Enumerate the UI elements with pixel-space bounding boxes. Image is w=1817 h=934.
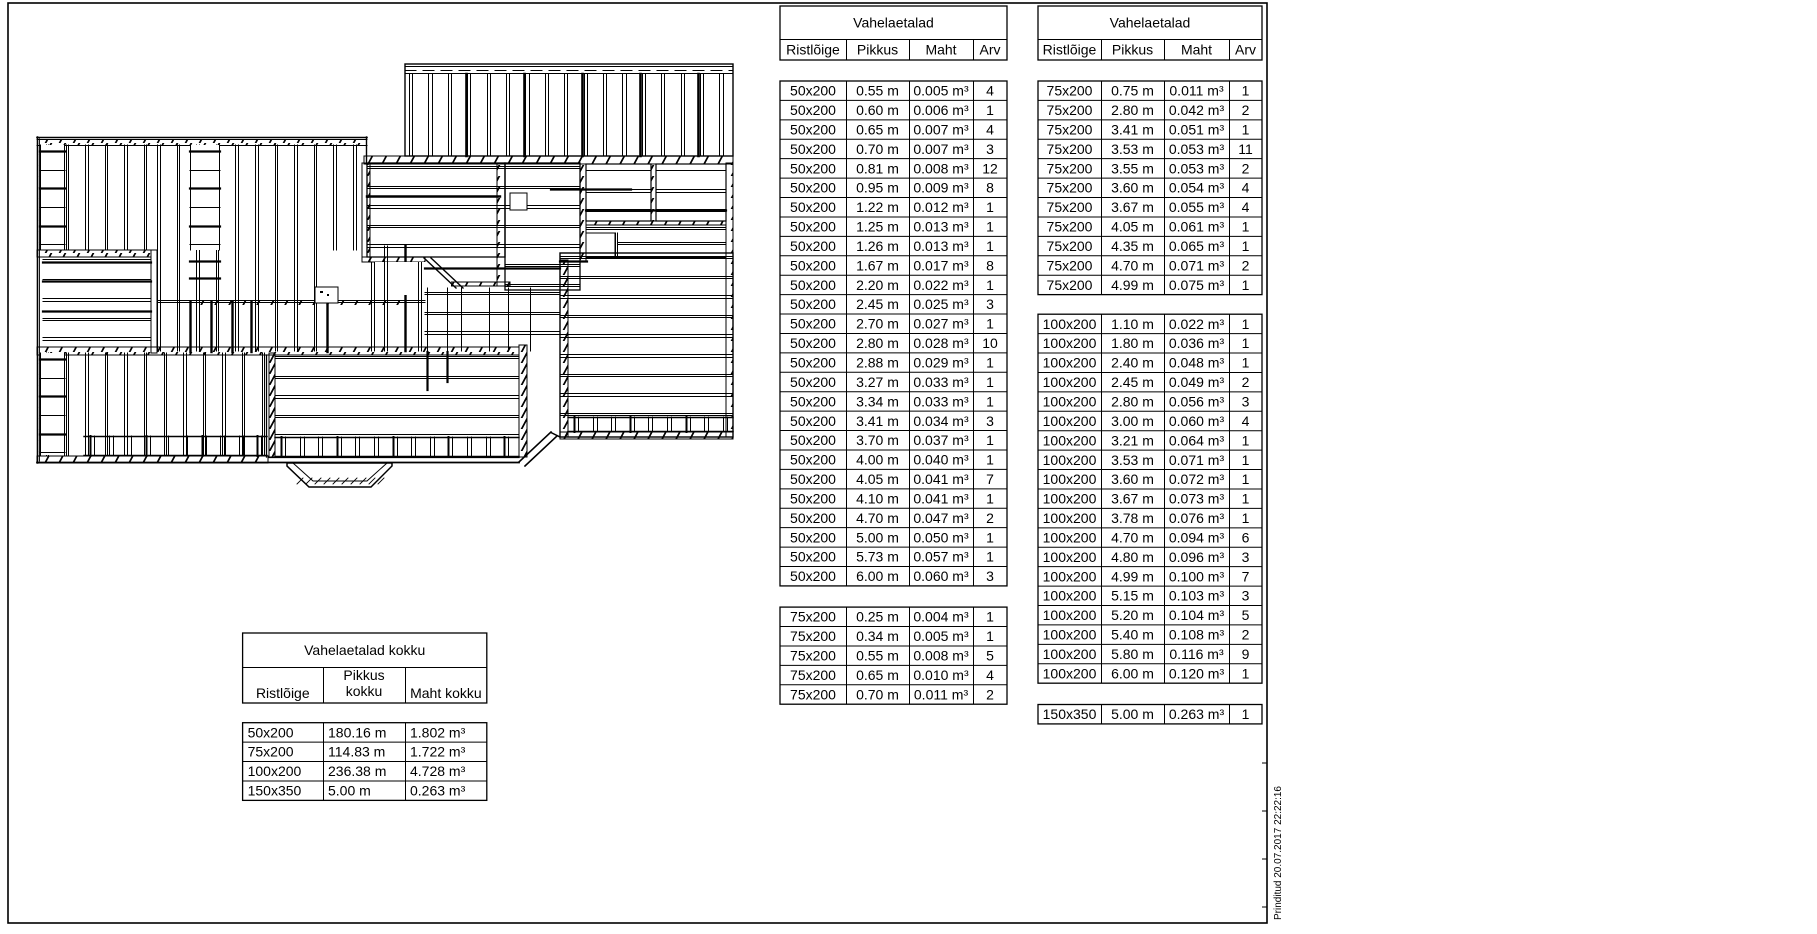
svg-text:0.041 m³: 0.041 m³ <box>913 490 969 506</box>
svg-text:50x200: 50x200 <box>248 724 294 740</box>
svg-text:0.049 m³: 0.049 m³ <box>1169 374 1225 390</box>
svg-text:150x350: 150x350 <box>1043 706 1097 722</box>
svg-text:1: 1 <box>986 393 994 409</box>
svg-text:114.83 m: 114.83 m <box>328 744 385 760</box>
svg-text:1: 1 <box>1242 335 1250 351</box>
svg-text:0.033 m³: 0.033 m³ <box>913 374 969 390</box>
svg-text:75x200: 75x200 <box>790 648 836 664</box>
svg-text:1: 1 <box>986 529 994 545</box>
svg-text:1: 1 <box>1242 491 1250 507</box>
svg-text:0.042 m³: 0.042 m³ <box>1169 102 1225 118</box>
svg-text:50x200: 50x200 <box>790 568 836 584</box>
svg-text:1: 1 <box>1242 219 1250 235</box>
svg-text:50x200: 50x200 <box>790 199 836 215</box>
svg-text:0.075 m³: 0.075 m³ <box>1169 277 1225 293</box>
svg-text:Pikkus: Pikkus <box>343 667 384 683</box>
svg-text:100x200: 100x200 <box>1043 374 1097 390</box>
svg-text:0.061 m³: 0.061 m³ <box>1169 219 1225 235</box>
svg-text:75x200: 75x200 <box>1047 257 1093 273</box>
svg-text:50x200: 50x200 <box>790 335 836 351</box>
svg-text:0.34 m: 0.34 m <box>856 628 899 644</box>
svg-text:4.99 m: 4.99 m <box>1111 277 1154 293</box>
svg-text:1: 1 <box>986 102 994 118</box>
svg-text:0.048 m³: 0.048 m³ <box>1169 355 1225 371</box>
svg-text:3.70 m: 3.70 m <box>856 432 899 448</box>
svg-text:0.008 m³: 0.008 m³ <box>913 160 969 176</box>
svg-text:0.096 m³: 0.096 m³ <box>1169 549 1225 565</box>
svg-text:100x200: 100x200 <box>1043 335 1097 351</box>
svg-text:0.050 m³: 0.050 m³ <box>913 529 969 545</box>
svg-text:10: 10 <box>982 335 998 351</box>
svg-text:2.40 m: 2.40 m <box>1111 355 1154 371</box>
svg-text:50x200: 50x200 <box>790 432 836 448</box>
svg-text:1: 1 <box>1242 510 1250 526</box>
svg-text:0.027 m³: 0.027 m³ <box>913 316 969 332</box>
svg-text:50x200: 50x200 <box>790 180 836 196</box>
svg-text:100x200: 100x200 <box>1043 510 1097 526</box>
svg-text:4.70 m: 4.70 m <box>1111 257 1154 273</box>
svg-text:1: 1 <box>1242 432 1250 448</box>
svg-text:Vahelaetalad: Vahelaetalad <box>853 14 934 30</box>
svg-text:3.55 m: 3.55 m <box>1111 160 1154 176</box>
svg-text:50x200: 50x200 <box>790 374 836 390</box>
svg-text:1: 1 <box>1242 355 1250 371</box>
svg-text:0.055 m³: 0.055 m³ <box>1169 199 1225 215</box>
svg-text:Ristlõige: Ristlõige <box>786 41 840 57</box>
svg-text:4.10 m: 4.10 m <box>856 490 899 506</box>
svg-text:2.80 m: 2.80 m <box>856 335 899 351</box>
svg-text:Ristlõige: Ristlõige <box>1043 41 1097 57</box>
svg-text:100x200: 100x200 <box>1043 665 1097 681</box>
svg-text:0.004 m³: 0.004 m³ <box>913 609 969 625</box>
svg-text:50x200: 50x200 <box>790 257 836 273</box>
svg-text:100x200: 100x200 <box>1043 316 1097 332</box>
svg-text:100x200: 100x200 <box>1043 452 1097 468</box>
svg-text:0.65 m: 0.65 m <box>856 667 899 683</box>
svg-text:100x200: 100x200 <box>1043 393 1097 409</box>
svg-text:1.722 m³: 1.722 m³ <box>410 744 466 760</box>
svg-text:0.70 m: 0.70 m <box>856 141 899 157</box>
svg-text:2: 2 <box>1242 374 1250 390</box>
svg-text:Pikkus: Pikkus <box>857 41 898 57</box>
svg-text:1: 1 <box>986 238 994 254</box>
svg-text:0.75 m: 0.75 m <box>1111 83 1154 99</box>
svg-text:0.009 m³: 0.009 m³ <box>913 180 969 196</box>
svg-text:4.70 m: 4.70 m <box>1111 529 1154 545</box>
svg-text:50x200: 50x200 <box>790 471 836 487</box>
svg-text:50x200: 50x200 <box>790 529 836 545</box>
svg-text:2: 2 <box>1242 160 1250 176</box>
svg-text:0.060 m³: 0.060 m³ <box>1169 413 1225 429</box>
svg-text:1.25 m: 1.25 m <box>856 219 899 235</box>
svg-text:5.00 m: 5.00 m <box>328 783 371 799</box>
svg-text:0.054 m³: 0.054 m³ <box>1169 180 1225 196</box>
svg-text:1.80 m: 1.80 m <box>1111 335 1154 351</box>
svg-text:50x200: 50x200 <box>790 219 836 235</box>
svg-text:100x200: 100x200 <box>1043 568 1097 584</box>
svg-text:0.005 m³: 0.005 m³ <box>913 83 969 99</box>
svg-text:Prinditud 20.07.2017 22:22:1: Prinditud 20.07.2017 22:22:16 <box>1273 786 1284 920</box>
svg-text:75x200: 75x200 <box>1047 160 1093 176</box>
svg-text:2.45 m: 2.45 m <box>856 296 899 312</box>
svg-text:3.41 m: 3.41 m <box>1111 121 1154 137</box>
svg-text:1: 1 <box>986 628 994 644</box>
svg-text:2: 2 <box>1242 257 1250 273</box>
svg-text:0.034 m³: 0.034 m³ <box>913 413 969 429</box>
svg-text:3.34 m: 3.34 m <box>856 393 899 409</box>
svg-text:100x200: 100x200 <box>1043 607 1097 623</box>
svg-text:50x200: 50x200 <box>790 354 836 370</box>
svg-text:3.21 m: 3.21 m <box>1111 432 1154 448</box>
svg-text:1: 1 <box>986 609 994 625</box>
svg-text:7: 7 <box>986 471 994 487</box>
svg-text:3: 3 <box>986 141 994 157</box>
svg-text:75x200: 75x200 <box>1047 180 1093 196</box>
svg-text:2.80 m: 2.80 m <box>1111 393 1154 409</box>
svg-text:3: 3 <box>986 568 994 584</box>
svg-text:1.802 m³: 1.802 m³ <box>410 724 466 740</box>
svg-text:0.005 m³: 0.005 m³ <box>913 628 969 644</box>
svg-text:1: 1 <box>1242 665 1250 681</box>
svg-text:100x200: 100x200 <box>248 763 302 779</box>
svg-text:0.263 m³: 0.263 m³ <box>410 783 466 799</box>
svg-text:100x200: 100x200 <box>1043 549 1097 565</box>
svg-text:50x200: 50x200 <box>790 238 836 254</box>
svg-text:0.057 m³: 0.057 m³ <box>913 549 969 565</box>
svg-text:150x350: 150x350 <box>248 783 302 799</box>
svg-text:0.007 m³: 0.007 m³ <box>913 121 969 137</box>
svg-text:1: 1 <box>1242 316 1250 332</box>
svg-text:Arv: Arv <box>980 41 1001 57</box>
svg-text:0.25 m: 0.25 m <box>856 609 899 625</box>
svg-text:3: 3 <box>1242 549 1250 565</box>
svg-text:0.040 m³: 0.040 m³ <box>913 452 969 468</box>
svg-text:4.00 m: 4.00 m <box>856 452 899 468</box>
svg-text:50x200: 50x200 <box>790 549 836 565</box>
svg-text:2: 2 <box>986 510 994 526</box>
svg-text:0.007 m³: 0.007 m³ <box>913 141 969 157</box>
svg-text:8: 8 <box>986 180 994 196</box>
svg-text:0.022 m³: 0.022 m³ <box>913 277 969 293</box>
svg-text:0.008 m³: 0.008 m³ <box>913 648 969 664</box>
svg-text:4: 4 <box>986 121 994 137</box>
svg-text:3.60 m: 3.60 m <box>1111 180 1154 196</box>
svg-text:50x200: 50x200 <box>790 102 836 118</box>
svg-text:0.037 m³: 0.037 m³ <box>913 432 969 448</box>
svg-text:1: 1 <box>1242 471 1250 487</box>
svg-text:75x200: 75x200 <box>1047 121 1093 137</box>
svg-text:50x200: 50x200 <box>790 160 836 176</box>
svg-text:1: 1 <box>1242 238 1250 254</box>
svg-text:0.076 m³: 0.076 m³ <box>1169 510 1225 526</box>
svg-text:0.013 m³: 0.013 m³ <box>913 219 969 235</box>
svg-text:0.012 m³: 0.012 m³ <box>913 199 969 215</box>
svg-text:7: 7 <box>1242 568 1250 584</box>
svg-text:100x200: 100x200 <box>1043 627 1097 643</box>
svg-text:50x200: 50x200 <box>790 277 836 293</box>
svg-text:3: 3 <box>1242 393 1250 409</box>
svg-text:1: 1 <box>986 549 994 565</box>
svg-text:2.20 m: 2.20 m <box>856 277 899 293</box>
svg-text:0.011 m³: 0.011 m³ <box>914 686 969 702</box>
svg-text:5.00 m: 5.00 m <box>1111 706 1154 722</box>
svg-text:100x200: 100x200 <box>1043 646 1097 662</box>
svg-text:2.70 m: 2.70 m <box>856 316 899 332</box>
svg-text:5.15 m: 5.15 m <box>1111 588 1154 604</box>
svg-text:1: 1 <box>986 199 994 215</box>
svg-text:4: 4 <box>1242 413 1250 429</box>
svg-text:0.073 m³: 0.073 m³ <box>1169 491 1225 507</box>
svg-text:1: 1 <box>986 374 994 390</box>
svg-text:0.041 m³: 0.041 m³ <box>913 471 969 487</box>
svg-text:100x200: 100x200 <box>1043 491 1097 507</box>
svg-text:4.728 m³: 4.728 m³ <box>410 763 466 779</box>
svg-text:Vahelaetalad kokku: Vahelaetalad kokku <box>304 642 425 658</box>
svg-text:3.53 m: 3.53 m <box>1111 141 1154 157</box>
svg-text:1: 1 <box>986 219 994 235</box>
svg-text:50x200: 50x200 <box>790 141 836 157</box>
svg-text:0.071 m³: 0.071 m³ <box>1169 452 1225 468</box>
svg-text:4.80 m: 4.80 m <box>1111 549 1154 565</box>
svg-text:75x200: 75x200 <box>790 628 836 644</box>
svg-text:1: 1 <box>986 452 994 468</box>
svg-text:1.26 m: 1.26 m <box>856 238 899 254</box>
svg-text:0.071 m³: 0.071 m³ <box>1169 257 1225 273</box>
svg-text:50x200: 50x200 <box>790 316 836 332</box>
svg-text:4: 4 <box>986 667 994 683</box>
svg-text:3.53 m: 3.53 m <box>1111 452 1154 468</box>
svg-text:0.010 m³: 0.010 m³ <box>913 667 969 683</box>
svg-text:100x200: 100x200 <box>1043 432 1097 448</box>
svg-text:4.05 m: 4.05 m <box>856 471 899 487</box>
svg-text:Maht kokku: Maht kokku <box>410 685 482 701</box>
svg-text:1: 1 <box>986 316 994 332</box>
svg-text:5.00 m: 5.00 m <box>856 529 899 545</box>
svg-text:75x200: 75x200 <box>1047 141 1093 157</box>
svg-text:6.00 m: 6.00 m <box>856 568 899 584</box>
svg-text:0.108 m³: 0.108 m³ <box>1169 627 1225 643</box>
svg-text:0.047 m³: 0.047 m³ <box>913 510 969 526</box>
svg-text:4: 4 <box>1242 180 1250 196</box>
svg-text:1: 1 <box>1242 121 1250 137</box>
svg-text:100x200: 100x200 <box>1043 529 1097 545</box>
svg-text:0.033 m³: 0.033 m³ <box>913 393 969 409</box>
svg-text:50x200: 50x200 <box>790 296 836 312</box>
svg-text:0.028 m³: 0.028 m³ <box>913 335 969 351</box>
svg-text:1: 1 <box>986 277 994 293</box>
svg-text:75x200: 75x200 <box>1047 238 1093 254</box>
svg-text:6: 6 <box>1242 529 1250 545</box>
svg-text:0.70 m: 0.70 m <box>856 686 899 702</box>
svg-text:1.10 m: 1.10 m <box>1111 316 1154 332</box>
svg-text:3.67 m: 3.67 m <box>1111 491 1154 507</box>
svg-text:0.051 m³: 0.051 m³ <box>1169 121 1225 137</box>
svg-text:100x200: 100x200 <box>1043 413 1097 429</box>
svg-text:5.20 m: 5.20 m <box>1111 607 1154 623</box>
svg-text:3: 3 <box>1242 588 1250 604</box>
svg-text:50x200: 50x200 <box>790 121 836 137</box>
svg-text:Ristlõige: Ristlõige <box>256 685 310 701</box>
svg-text:2: 2 <box>1242 627 1250 643</box>
svg-text:0.022 m³: 0.022 m³ <box>1169 316 1225 332</box>
svg-text:Arv: Arv <box>1235 41 1256 57</box>
svg-text:1.67 m: 1.67 m <box>856 257 899 273</box>
svg-text:0.064 m³: 0.064 m³ <box>1169 432 1225 448</box>
svg-text:Vahelaetalad: Vahelaetalad <box>1110 14 1191 30</box>
svg-text:1: 1 <box>1242 277 1250 293</box>
svg-text:2.80 m: 2.80 m <box>1111 102 1154 118</box>
svg-text:0.013 m³: 0.013 m³ <box>913 238 969 254</box>
svg-text:1: 1 <box>1242 452 1250 468</box>
svg-text:2: 2 <box>986 686 994 702</box>
svg-text:50x200: 50x200 <box>790 452 836 468</box>
svg-text:1: 1 <box>986 490 994 506</box>
svg-text:0.103 m³: 0.103 m³ <box>1169 588 1225 604</box>
svg-text:1.22 m: 1.22 m <box>856 199 899 215</box>
svg-text:12: 12 <box>982 160 998 176</box>
svg-text:75x200: 75x200 <box>1047 277 1093 293</box>
svg-text:4.70 m: 4.70 m <box>856 510 899 526</box>
svg-text:0.120 m³: 0.120 m³ <box>1169 665 1225 681</box>
svg-text:5.40 m: 5.40 m <box>1111 627 1154 643</box>
svg-text:75x200: 75x200 <box>1047 219 1093 235</box>
svg-text:180.16 m: 180.16 m <box>328 724 386 740</box>
svg-text:0.006 m³: 0.006 m³ <box>913 102 969 118</box>
svg-text:50x200: 50x200 <box>790 393 836 409</box>
svg-text:50x200: 50x200 <box>790 413 836 429</box>
svg-text:100x200: 100x200 <box>1043 471 1097 487</box>
svg-text:0.017 m³: 0.017 m³ <box>913 257 969 273</box>
svg-text:9: 9 <box>1242 646 1250 662</box>
svg-text:0.95 m: 0.95 m <box>856 180 899 196</box>
svg-text:8: 8 <box>986 257 994 273</box>
svg-text:6.00 m: 6.00 m <box>1111 665 1154 681</box>
svg-text:3.60 m: 3.60 m <box>1111 471 1154 487</box>
svg-text:75x200: 75x200 <box>248 744 294 760</box>
svg-text:2.45 m: 2.45 m <box>1111 374 1154 390</box>
svg-text:0.060 m³: 0.060 m³ <box>913 568 969 584</box>
svg-text:100x200: 100x200 <box>1043 355 1097 371</box>
svg-text:0.029 m³: 0.029 m³ <box>913 354 969 370</box>
svg-text:0.053 m³: 0.053 m³ <box>1169 141 1225 157</box>
svg-text:4.35 m: 4.35 m <box>1111 238 1154 254</box>
svg-text:3.27 m: 3.27 m <box>856 374 899 390</box>
svg-text:1: 1 <box>1242 83 1250 99</box>
svg-text:1: 1 <box>1242 706 1250 722</box>
svg-text:75x200: 75x200 <box>790 609 836 625</box>
svg-text:0.056 m³: 0.056 m³ <box>1169 393 1225 409</box>
svg-text:1: 1 <box>986 354 994 370</box>
svg-text:4: 4 <box>1242 199 1250 215</box>
svg-text:11: 11 <box>1238 141 1253 157</box>
svg-text:4.99 m: 4.99 m <box>1111 568 1154 584</box>
svg-text:0.55 m: 0.55 m <box>856 83 899 99</box>
svg-text:75x200: 75x200 <box>1047 199 1093 215</box>
svg-text:75x200: 75x200 <box>790 686 836 702</box>
svg-text:0.100 m³: 0.100 m³ <box>1169 568 1225 584</box>
svg-text:0.55 m: 0.55 m <box>856 648 899 664</box>
svg-text:50x200: 50x200 <box>790 490 836 506</box>
svg-text:Maht: Maht <box>1181 41 1212 57</box>
svg-text:50x200: 50x200 <box>790 510 836 526</box>
svg-text:75x200: 75x200 <box>790 667 836 683</box>
svg-text:Pikkus: Pikkus <box>1112 41 1153 57</box>
svg-text:4: 4 <box>986 83 994 99</box>
svg-text:75x200: 75x200 <box>1047 102 1093 118</box>
svg-text:3.41 m: 3.41 m <box>856 413 899 429</box>
svg-text:kokku: kokku <box>346 683 383 699</box>
svg-text:0.60 m: 0.60 m <box>856 102 899 118</box>
svg-text:0.65 m: 0.65 m <box>856 121 899 137</box>
svg-text:75x200: 75x200 <box>1047 83 1093 99</box>
svg-text:0.053 m³: 0.053 m³ <box>1169 160 1225 176</box>
svg-text:Maht: Maht <box>925 41 956 57</box>
svg-text:0.036 m³: 0.036 m³ <box>1169 335 1225 351</box>
svg-text:3: 3 <box>986 413 994 429</box>
svg-text:0.025 m³: 0.025 m³ <box>913 296 969 312</box>
svg-text:3.67 m: 3.67 m <box>1111 199 1154 215</box>
svg-text:0.072 m³: 0.072 m³ <box>1169 471 1225 487</box>
svg-text:3: 3 <box>986 296 994 312</box>
svg-text:236.38 m: 236.38 m <box>328 763 386 779</box>
svg-text:2.88 m: 2.88 m <box>856 354 899 370</box>
svg-text:5.73 m: 5.73 m <box>856 549 899 565</box>
svg-text:1: 1 <box>986 432 994 448</box>
svg-text:3.00 m: 3.00 m <box>1111 413 1154 429</box>
svg-text:0.116 m³: 0.116 m³ <box>1169 646 1224 662</box>
svg-text:5: 5 <box>986 648 994 664</box>
svg-text:5: 5 <box>1242 607 1250 623</box>
svg-text:0.81 m: 0.81 m <box>856 160 899 176</box>
svg-text:0.011 m³: 0.011 m³ <box>1169 83 1224 99</box>
svg-text:0.104 m³: 0.104 m³ <box>1169 607 1225 623</box>
svg-text:0.263 m³: 0.263 m³ <box>1169 706 1225 722</box>
svg-text:5.80 m: 5.80 m <box>1111 646 1154 662</box>
svg-text:50x200: 50x200 <box>790 83 836 99</box>
svg-text:100x200: 100x200 <box>1043 588 1097 604</box>
svg-text:4.05 m: 4.05 m <box>1111 219 1154 235</box>
svg-text:3.78 m: 3.78 m <box>1111 510 1154 526</box>
svg-text:0.065 m³: 0.065 m³ <box>1169 238 1225 254</box>
svg-text:2: 2 <box>1242 102 1250 118</box>
svg-text:0.094 m³: 0.094 m³ <box>1169 529 1225 545</box>
